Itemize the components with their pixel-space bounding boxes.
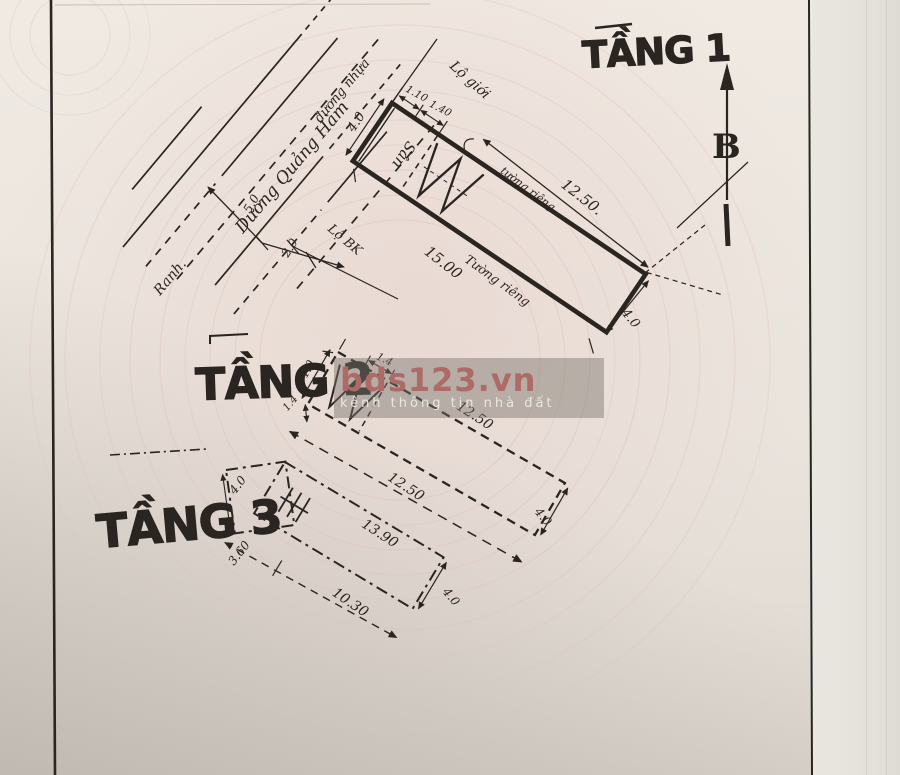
watermark-tagline: kênh thông tin nhà đất (340, 396, 598, 411)
watermark-brand: bds123.vn (340, 365, 598, 395)
floor1-dim-front: 12.50. (558, 175, 607, 219)
street-name-label: Dương Quảng Hàm (231, 98, 353, 238)
road-boundary-left-label: Lộ BK (324, 221, 366, 260)
floor1-dim-bottom: 15.00 (421, 242, 466, 283)
floor1-dim-top-b: 1.40 (427, 98, 454, 120)
floor1-title: TẦNG 1 (581, 20, 731, 77)
floor3-dim-right: 4.0 (439, 584, 463, 609)
watermark: bds123.vn kênh thông tin nhà đất (334, 358, 604, 418)
road-boundary-left: Lộ BK (287, 221, 398, 299)
north-label: B (712, 127, 741, 167)
floor1-yard-label: Sân (388, 138, 419, 172)
north-arrow: B (645, 63, 748, 273)
scanned-floor-plan-photo: Dương Quảng Hàm đường nhựa Ranh. 5.0 2.0… (0, 0, 900, 775)
floor3-title: TẦNG 3 (94, 483, 284, 559)
floor3-dim-bottom: 10.30 (329, 585, 371, 621)
